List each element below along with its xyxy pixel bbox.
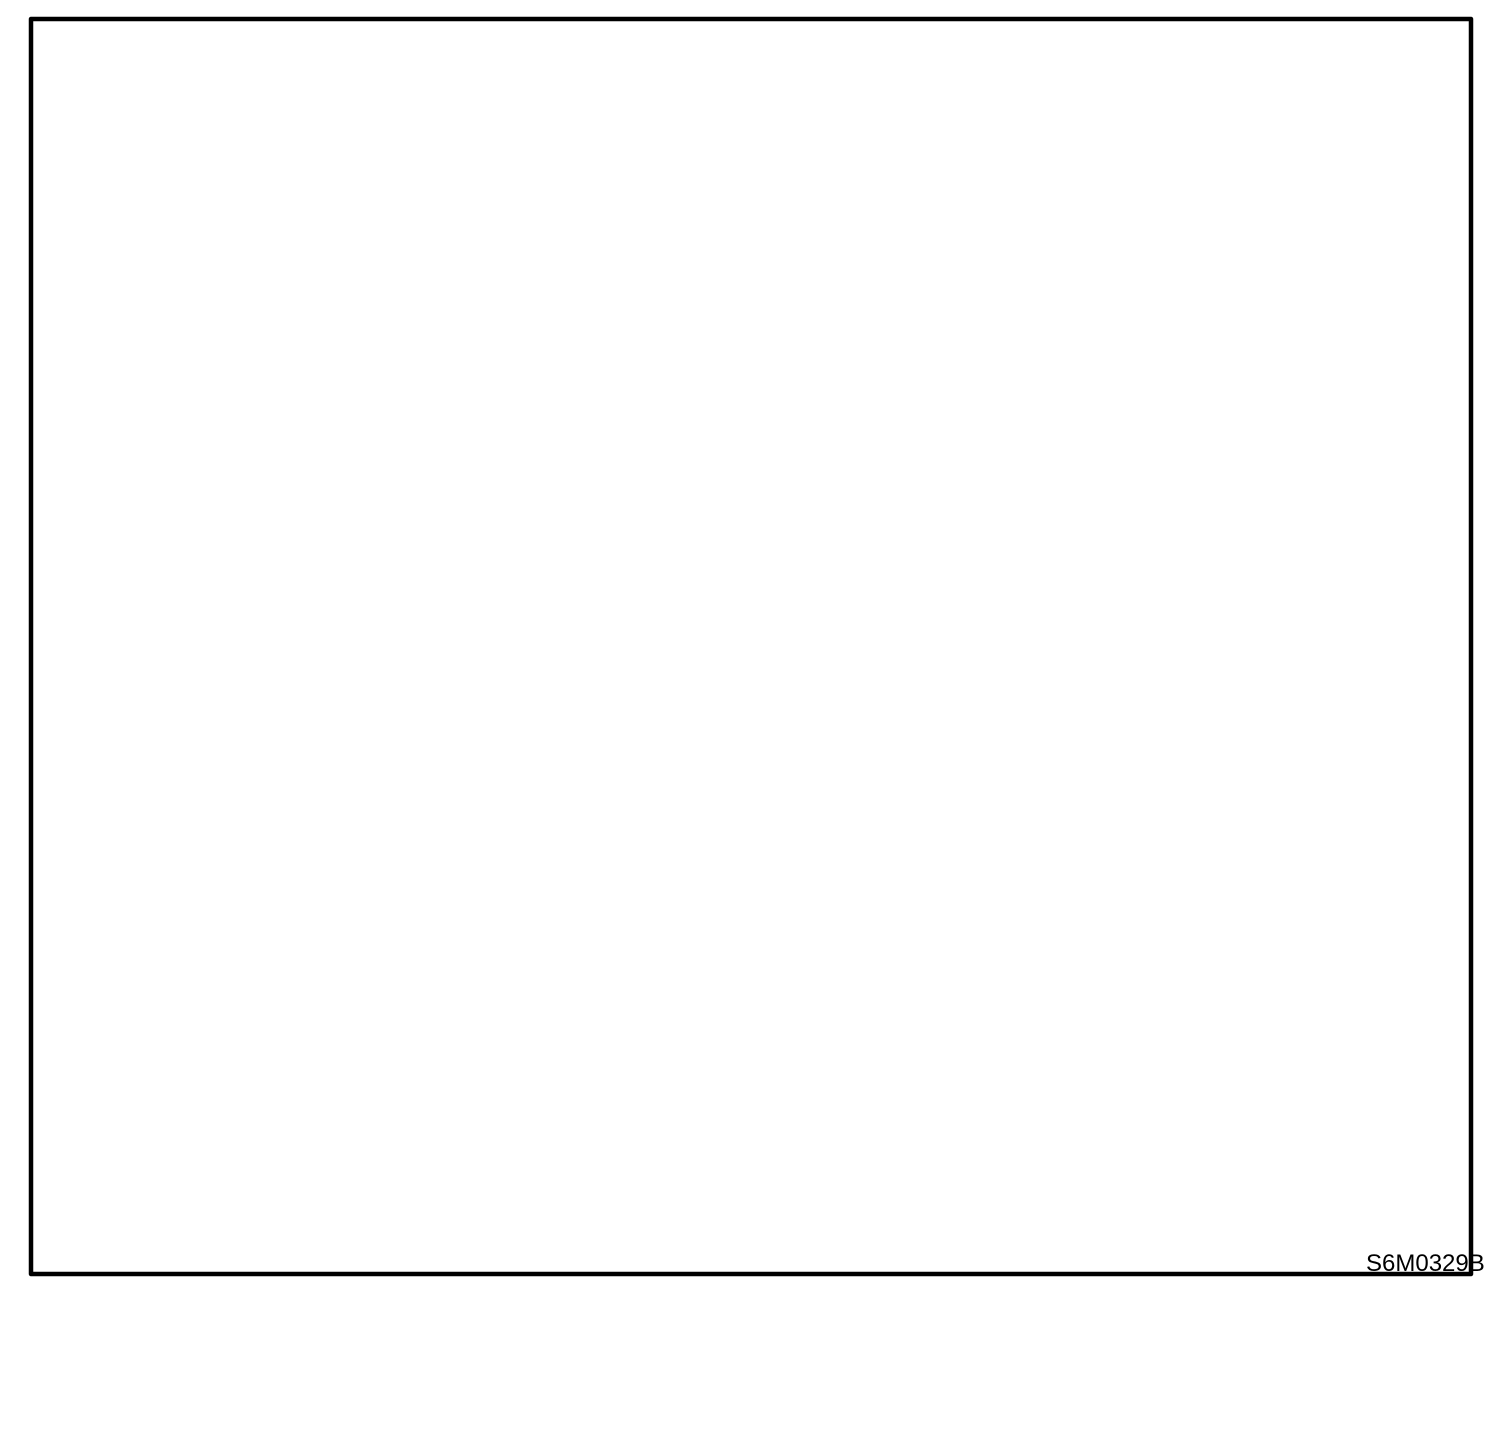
svg-text:S6M0329B: S6M0329B — [1366, 1250, 1485, 1277]
